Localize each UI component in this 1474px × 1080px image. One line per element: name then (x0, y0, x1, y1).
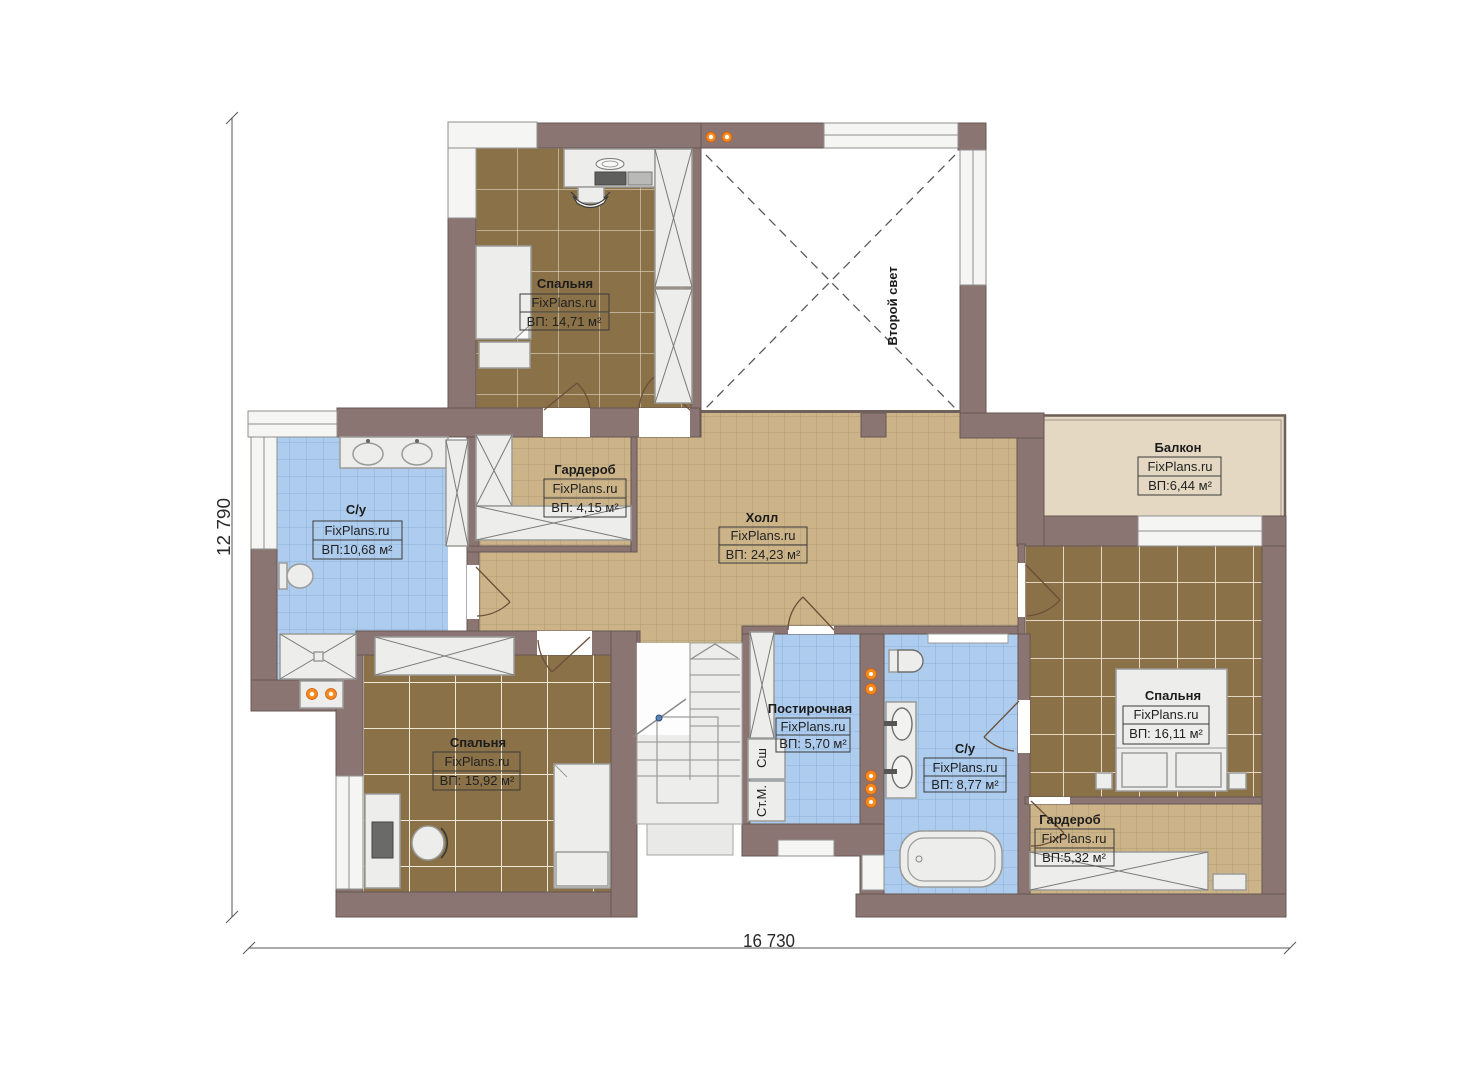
svg-text:Балкон: Балкон (1155, 440, 1202, 455)
svg-text:ВП: 14,71 м²: ВП: 14,71 м² (527, 314, 602, 329)
svg-text:ВП: 8,77 м²: ВП: 8,77 м² (931, 777, 999, 792)
svg-text:FixPlans.ru: FixPlans.ru (1133, 707, 1198, 722)
svg-text:FixPlans.ru: FixPlans.ru (730, 528, 795, 543)
svg-text:12 790: 12 790 (214, 498, 234, 556)
svg-text:FixPlans.ru: FixPlans.ru (1041, 831, 1106, 846)
svg-text:Спальня: Спальня (450, 735, 506, 750)
svg-text:Сш: Сш (754, 748, 769, 768)
svg-text:Ст.М.: Ст.М. (754, 785, 769, 817)
svg-text:ВП: 24,23 м²: ВП: 24,23 м² (726, 547, 801, 562)
svg-text:ВП: 5,70 м²: ВП: 5,70 м² (779, 736, 847, 751)
svg-text:ВП: 4,15 м²: ВП: 4,15 м² (551, 500, 619, 515)
svg-text:ВП:6,44 м²: ВП:6,44 м² (1148, 478, 1212, 493)
svg-text:Гардероб: Гардероб (554, 462, 615, 477)
svg-text:FixPlans.ru: FixPlans.ru (444, 754, 509, 769)
svg-text:Постирочная: Постирочная (768, 701, 852, 716)
svg-text:Спальня: Спальня (1145, 688, 1201, 703)
svg-text:Гардероб: Гардероб (1039, 812, 1100, 827)
svg-text:Холл: Холл (746, 510, 779, 525)
svg-text:FixPlans.ru: FixPlans.ru (531, 295, 596, 310)
svg-text:ВП: 15,92 м²: ВП: 15,92 м² (440, 773, 515, 788)
svg-text:ВП: 16,11 м²: ВП: 16,11 м² (1129, 726, 1203, 741)
svg-text:ВП:5,32 м²: ВП:5,32 м² (1042, 850, 1106, 865)
svg-text:FixPlans.ru: FixPlans.ru (1147, 459, 1212, 474)
svg-text:FixPlans.ru: FixPlans.ru (932, 760, 997, 775)
svg-text:16 730: 16 730 (743, 931, 795, 951)
svg-text:Спальня: Спальня (537, 276, 593, 291)
svg-text:С/у: С/у (955, 741, 976, 756)
svg-text:FixPlans.ru: FixPlans.ru (324, 523, 389, 538)
svg-text:FixPlans.ru: FixPlans.ru (780, 719, 845, 734)
svg-text:ВП:10,68 м²: ВП:10,68 м² (321, 542, 393, 557)
svg-text:С/у: С/у (346, 502, 367, 517)
svg-text:FixPlans.ru: FixPlans.ru (552, 481, 617, 496)
svg-text:Второй свет: Второй свет (885, 266, 900, 345)
